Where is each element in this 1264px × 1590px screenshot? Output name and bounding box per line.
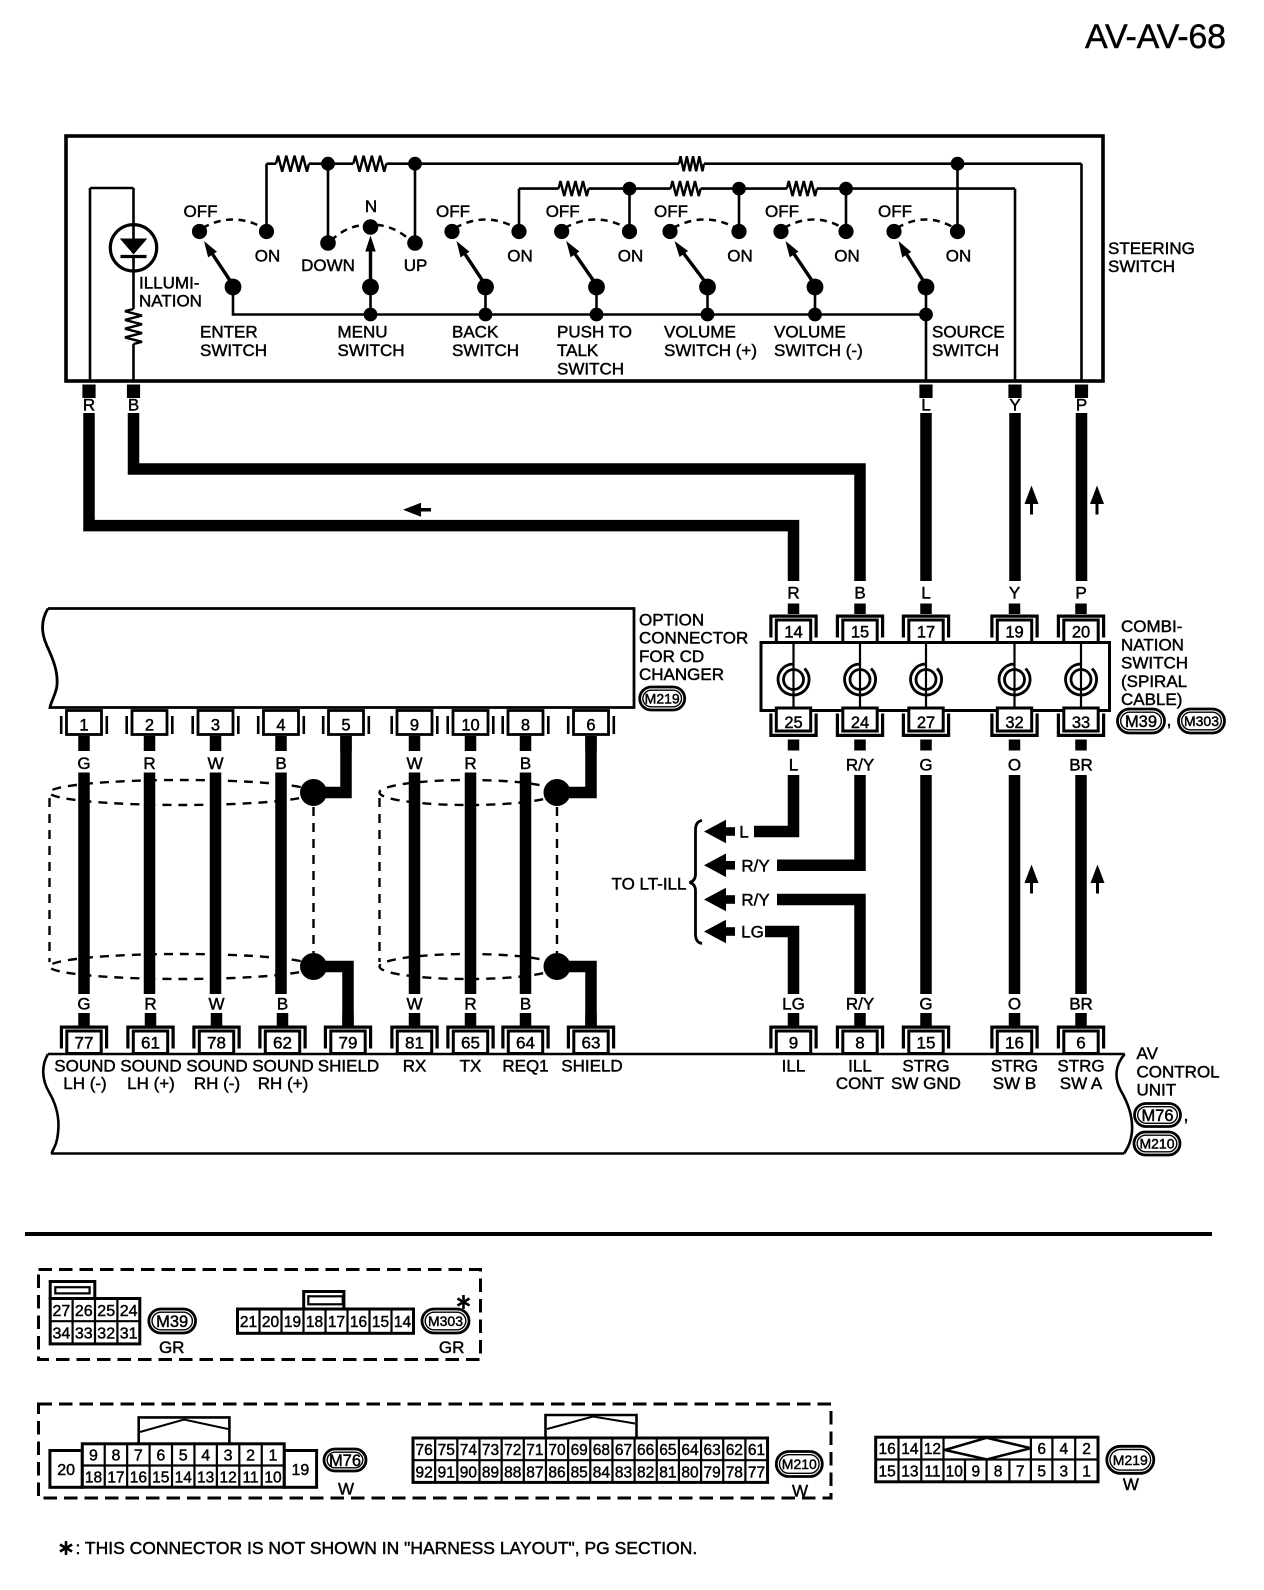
svg-text:SW A: SW A — [1060, 1074, 1103, 1093]
svg-text:16: 16 — [1005, 1034, 1024, 1053]
svg-text:SWITCH: SWITCH — [338, 341, 405, 360]
svg-text:80: 80 — [681, 1464, 699, 1481]
svg-text:9: 9 — [89, 1448, 98, 1465]
svg-text:15: 15 — [878, 1464, 895, 1481]
svg-text:R/Y: R/Y — [741, 856, 769, 875]
svg-text:17: 17 — [107, 1469, 124, 1486]
svg-text:91: 91 — [438, 1464, 455, 1481]
svg-text:STRG: STRG — [902, 1057, 949, 1076]
svg-text:79: 79 — [339, 1034, 358, 1053]
svg-text:NATION: NATION — [139, 292, 202, 311]
svg-text:4: 4 — [276, 717, 285, 735]
svg-text:SOUND: SOUND — [186, 1057, 247, 1076]
svg-text:72: 72 — [504, 1442, 521, 1459]
svg-text:W: W — [208, 995, 224, 1014]
svg-text:TO LT-ILL: TO LT-ILL — [612, 875, 687, 894]
svg-text:M219: M219 — [645, 691, 680, 707]
svg-text:CONT: CONT — [836, 1074, 884, 1093]
svg-text:RX: RX — [403, 1057, 427, 1076]
svg-text:: THIS CONNECTOR IS NOT SHOWN: : THIS CONNECTOR IS NOT SHOWN IN "HARNES… — [76, 1538, 698, 1558]
svg-text:9: 9 — [789, 1034, 798, 1053]
svg-text:13: 13 — [197, 1469, 214, 1486]
svg-text:SW GND: SW GND — [891, 1074, 961, 1093]
svg-text:CABLE): CABLE) — [1121, 690, 1182, 709]
svg-text:ILL: ILL — [848, 1057, 872, 1076]
svg-text:65: 65 — [461, 1034, 480, 1053]
svg-text:4: 4 — [201, 1448, 210, 1465]
svg-text:64: 64 — [681, 1442, 699, 1459]
svg-text:19: 19 — [292, 1462, 310, 1479]
svg-text:6: 6 — [1076, 1034, 1085, 1053]
svg-text:B: B — [128, 396, 139, 415]
svg-text:UP: UP — [404, 256, 428, 275]
svg-text:W: W — [406, 754, 422, 773]
svg-text:L: L — [789, 756, 798, 775]
svg-text:PUSH TO: PUSH TO — [557, 323, 632, 342]
svg-text:OPTION: OPTION — [639, 611, 704, 630]
svg-text:W: W — [406, 995, 422, 1014]
svg-text:W: W — [1123, 1475, 1139, 1494]
svg-text:71: 71 — [526, 1442, 543, 1459]
svg-text:6: 6 — [586, 717, 595, 735]
svg-text:21: 21 — [240, 1314, 257, 1331]
svg-text:N: N — [365, 197, 377, 216]
svg-text:85: 85 — [571, 1464, 588, 1481]
svg-text:O: O — [1008, 756, 1021, 775]
svg-text:14: 14 — [784, 624, 802, 642]
svg-text:SOUND: SOUND — [120, 1057, 181, 1076]
svg-text:87: 87 — [526, 1464, 543, 1481]
svg-text:M39: M39 — [1125, 713, 1157, 731]
svg-text:W: W — [207, 754, 223, 773]
svg-text:R: R — [144, 995, 156, 1014]
svg-text:15: 15 — [851, 624, 869, 642]
svg-text:20: 20 — [57, 1462, 75, 1479]
svg-text:2: 2 — [145, 717, 154, 735]
svg-text:3: 3 — [1059, 1464, 1068, 1481]
svg-text:B: B — [277, 995, 288, 1014]
svg-text:9: 9 — [410, 717, 419, 735]
svg-text:MENU: MENU — [338, 323, 388, 342]
svg-text:15: 15 — [152, 1469, 169, 1486]
svg-text:10: 10 — [946, 1464, 964, 1481]
svg-text:TALK: TALK — [557, 341, 599, 360]
svg-text:G: G — [919, 756, 932, 775]
svg-text:SW B: SW B — [993, 1074, 1036, 1093]
svg-text:SWITCH: SWITCH — [452, 341, 519, 360]
svg-text:SOUND: SOUND — [54, 1057, 115, 1076]
svg-text:89: 89 — [482, 1464, 499, 1481]
svg-text:4: 4 — [1059, 1441, 1068, 1458]
svg-text:83: 83 — [615, 1464, 632, 1481]
svg-text:OFF: OFF — [436, 202, 470, 221]
svg-text:8: 8 — [521, 717, 530, 735]
svg-text:,: , — [1166, 710, 1171, 730]
svg-text:R/Y: R/Y — [846, 756, 874, 775]
svg-text:68: 68 — [593, 1442, 610, 1459]
svg-text:5: 5 — [179, 1448, 188, 1465]
svg-text:SOURCE: SOURCE — [932, 323, 1005, 342]
svg-text:19: 19 — [1005, 624, 1023, 642]
svg-text:3: 3 — [211, 717, 220, 735]
svg-text:CONTROL: CONTROL — [1137, 1063, 1220, 1082]
svg-text:10: 10 — [264, 1469, 282, 1486]
svg-text:M210: M210 — [1139, 1136, 1174, 1152]
svg-text:24: 24 — [120, 1303, 138, 1320]
svg-text:81: 81 — [405, 1034, 424, 1053]
svg-text:76: 76 — [415, 1442, 432, 1459]
svg-text:G: G — [77, 995, 90, 1014]
svg-text:AV-AV-68: AV-AV-68 — [1085, 18, 1226, 56]
svg-text:5: 5 — [1037, 1464, 1046, 1481]
svg-text:25: 25 — [97, 1303, 115, 1320]
svg-text:COMBI-: COMBI- — [1121, 617, 1182, 636]
svg-text:63: 63 — [704, 1442, 721, 1459]
svg-text:STRG: STRG — [1057, 1057, 1104, 1076]
svg-text:B: B — [520, 754, 531, 773]
svg-text:18: 18 — [306, 1314, 323, 1331]
svg-text:G: G — [77, 754, 90, 773]
svg-text:ON: ON — [255, 247, 281, 266]
svg-text:,: , — [1183, 1105, 1188, 1125]
svg-text:M210: M210 — [782, 1456, 817, 1472]
svg-text:RH (-): RH (-) — [194, 1074, 240, 1093]
svg-text:2: 2 — [246, 1448, 255, 1465]
svg-text:B: B — [275, 754, 286, 773]
svg-text:19: 19 — [284, 1314, 301, 1331]
svg-text:8: 8 — [855, 1034, 864, 1053]
svg-text:CONNECTOR: CONNECTOR — [639, 629, 748, 648]
svg-text:B: B — [520, 995, 531, 1014]
svg-text:32: 32 — [1005, 714, 1023, 732]
svg-text:67: 67 — [615, 1442, 632, 1459]
svg-text:6: 6 — [156, 1448, 165, 1465]
svg-text:18: 18 — [85, 1469, 102, 1486]
svg-text:AV: AV — [1137, 1044, 1159, 1063]
svg-text:20: 20 — [1072, 624, 1090, 642]
svg-text:R/Y: R/Y — [846, 995, 874, 1014]
svg-text:ON: ON — [507, 247, 533, 266]
svg-text:31: 31 — [120, 1326, 138, 1343]
svg-text:27: 27 — [53, 1303, 71, 1320]
svg-text:2: 2 — [1082, 1441, 1091, 1458]
svg-text:77: 77 — [748, 1464, 765, 1481]
svg-text:15: 15 — [917, 1034, 936, 1053]
svg-text:M303: M303 — [1184, 713, 1219, 729]
svg-text:ON: ON — [946, 247, 972, 266]
svg-text:OFF: OFF — [184, 202, 218, 221]
svg-text:ON: ON — [834, 247, 860, 266]
svg-text:12: 12 — [219, 1469, 236, 1486]
svg-text:O: O — [1008, 995, 1021, 1014]
svg-text:OFF: OFF — [878, 202, 912, 221]
svg-text:61: 61 — [141, 1034, 160, 1053]
svg-text:G: G — [919, 995, 932, 1014]
svg-text:M76: M76 — [329, 1452, 361, 1470]
svg-text:16: 16 — [878, 1441, 895, 1458]
svg-text:R: R — [464, 995, 476, 1014]
svg-text:W: W — [792, 1482, 808, 1501]
svg-text:8: 8 — [111, 1448, 120, 1465]
svg-text:84: 84 — [593, 1464, 611, 1481]
svg-text:LG: LG — [741, 923, 764, 942]
svg-text:14: 14 — [394, 1314, 412, 1331]
svg-text:M39: M39 — [156, 1313, 188, 1331]
svg-text:FOR CD: FOR CD — [639, 647, 704, 666]
svg-text:61: 61 — [748, 1442, 765, 1459]
svg-text:75: 75 — [438, 1442, 455, 1459]
svg-text:17: 17 — [917, 624, 935, 642]
svg-text:REQ1: REQ1 — [502, 1057, 548, 1076]
svg-text:88: 88 — [504, 1464, 521, 1481]
svg-text:15: 15 — [372, 1314, 389, 1331]
svg-text:P: P — [1075, 584, 1086, 603]
svg-text:SWITCH: SWITCH — [557, 360, 624, 379]
svg-text:14: 14 — [901, 1441, 919, 1458]
svg-text:L: L — [921, 584, 930, 603]
svg-text:W: W — [338, 1480, 354, 1499]
svg-text:R: R — [83, 396, 95, 415]
svg-text:ON: ON — [727, 247, 753, 266]
svg-text:65: 65 — [659, 1442, 676, 1459]
svg-text:ENTER: ENTER — [200, 323, 258, 342]
svg-text:6: 6 — [1037, 1441, 1046, 1458]
svg-text:26: 26 — [75, 1303, 93, 1320]
svg-text:OFF: OFF — [546, 202, 580, 221]
svg-text:8: 8 — [994, 1464, 1003, 1481]
svg-text:20: 20 — [262, 1314, 280, 1331]
svg-text:UNIT: UNIT — [1137, 1081, 1177, 1100]
svg-text:62: 62 — [273, 1034, 292, 1053]
svg-text:R: R — [464, 754, 476, 773]
svg-text:17: 17 — [328, 1314, 345, 1331]
svg-text:NATION: NATION — [1121, 635, 1184, 654]
svg-text:ILL: ILL — [782, 1057, 806, 1076]
svg-text:VOLUME: VOLUME — [774, 323, 846, 342]
svg-text:ON: ON — [618, 247, 644, 266]
svg-text:TX: TX — [460, 1057, 482, 1076]
svg-text:STRG: STRG — [991, 1057, 1038, 1076]
svg-text:92: 92 — [415, 1464, 432, 1481]
svg-text:BACK: BACK — [452, 323, 499, 342]
svg-text:L: L — [739, 823, 748, 842]
svg-text:70: 70 — [548, 1442, 566, 1459]
svg-text:3: 3 — [224, 1448, 233, 1465]
svg-text:11: 11 — [924, 1464, 940, 1481]
svg-text:1: 1 — [1082, 1464, 1091, 1481]
svg-text:62: 62 — [726, 1442, 743, 1459]
svg-text:7: 7 — [1016, 1464, 1025, 1481]
svg-text:OFF: OFF — [654, 202, 688, 221]
svg-text:16: 16 — [350, 1314, 367, 1331]
svg-text:66: 66 — [637, 1442, 654, 1459]
svg-text:(SPIRAL: (SPIRAL — [1121, 672, 1187, 691]
svg-text:SWITCH: SWITCH — [932, 341, 999, 360]
svg-text:86: 86 — [548, 1464, 565, 1481]
svg-text:LG: LG — [782, 995, 805, 1014]
svg-text:M219: M219 — [1113, 1452, 1148, 1468]
svg-text:SHIELD: SHIELD — [561, 1057, 622, 1076]
svg-text:14: 14 — [175, 1469, 193, 1486]
svg-text:BR: BR — [1069, 995, 1093, 1014]
svg-text:LH (+): LH (+) — [127, 1074, 175, 1093]
svg-text:63: 63 — [582, 1034, 601, 1053]
svg-text:R/Y: R/Y — [741, 891, 769, 910]
svg-text:SWITCH (-): SWITCH (-) — [774, 341, 863, 360]
svg-text:R: R — [787, 584, 799, 603]
svg-text:ILLUMI-: ILLUMI- — [139, 274, 199, 293]
svg-text:DOWN: DOWN — [301, 256, 355, 275]
svg-text:16: 16 — [130, 1469, 147, 1486]
svg-text:11: 11 — [242, 1469, 258, 1486]
svg-text:7: 7 — [134, 1448, 143, 1465]
svg-text:GR: GR — [439, 1338, 465, 1357]
svg-text:Y: Y — [1009, 584, 1020, 603]
svg-text:9: 9 — [971, 1464, 980, 1481]
svg-text:SWITCH: SWITCH — [1121, 654, 1188, 673]
svg-text:LH (-): LH (-) — [63, 1074, 106, 1093]
svg-text:77: 77 — [75, 1034, 94, 1053]
svg-text:81: 81 — [659, 1464, 676, 1481]
svg-text:STEERING: STEERING — [1108, 239, 1195, 258]
svg-text:CHANGER: CHANGER — [639, 665, 724, 684]
svg-text:RH (+): RH (+) — [258, 1074, 309, 1093]
svg-text:10: 10 — [461, 717, 479, 735]
svg-text:24: 24 — [851, 714, 869, 732]
svg-text:5: 5 — [341, 717, 350, 735]
svg-text:82: 82 — [637, 1464, 654, 1481]
svg-text:SWITCH: SWITCH — [200, 341, 267, 360]
svg-text:M76: M76 — [1141, 1107, 1173, 1125]
svg-text:R: R — [143, 754, 155, 773]
svg-text:L: L — [921, 396, 930, 415]
svg-text:33: 33 — [75, 1326, 93, 1343]
svg-text:SOUND: SOUND — [252, 1057, 313, 1076]
svg-text:Y: Y — [1009, 396, 1020, 415]
svg-text:33: 33 — [1072, 714, 1090, 732]
svg-text:SHIELD: SHIELD — [318, 1057, 379, 1076]
svg-text:90: 90 — [460, 1464, 478, 1481]
svg-text:73: 73 — [482, 1442, 499, 1459]
svg-text:GR: GR — [159, 1338, 185, 1357]
svg-text:SWITCH (+): SWITCH (+) — [664, 341, 757, 360]
svg-text:25: 25 — [784, 714, 802, 732]
svg-text:34: 34 — [53, 1326, 71, 1343]
svg-text:12: 12 — [924, 1441, 941, 1458]
svg-text:VOLUME: VOLUME — [664, 323, 736, 342]
svg-text:M303: M303 — [428, 1313, 463, 1329]
svg-text:B: B — [854, 584, 865, 603]
svg-text:SWITCH: SWITCH — [1108, 257, 1175, 276]
svg-text:79: 79 — [704, 1464, 721, 1481]
svg-text:OFF: OFF — [765, 202, 799, 221]
svg-text:13: 13 — [901, 1464, 918, 1481]
svg-text:74: 74 — [460, 1442, 478, 1459]
svg-text:78: 78 — [207, 1034, 226, 1053]
svg-text:64: 64 — [516, 1034, 535, 1053]
svg-text:1: 1 — [269, 1448, 278, 1465]
svg-text:1: 1 — [79, 717, 88, 735]
svg-text:78: 78 — [726, 1464, 743, 1481]
svg-text:P: P — [1076, 396, 1087, 415]
svg-text:32: 32 — [97, 1326, 115, 1343]
svg-text:BR: BR — [1069, 756, 1093, 775]
svg-text:69: 69 — [571, 1442, 588, 1459]
svg-text:27: 27 — [917, 714, 935, 732]
